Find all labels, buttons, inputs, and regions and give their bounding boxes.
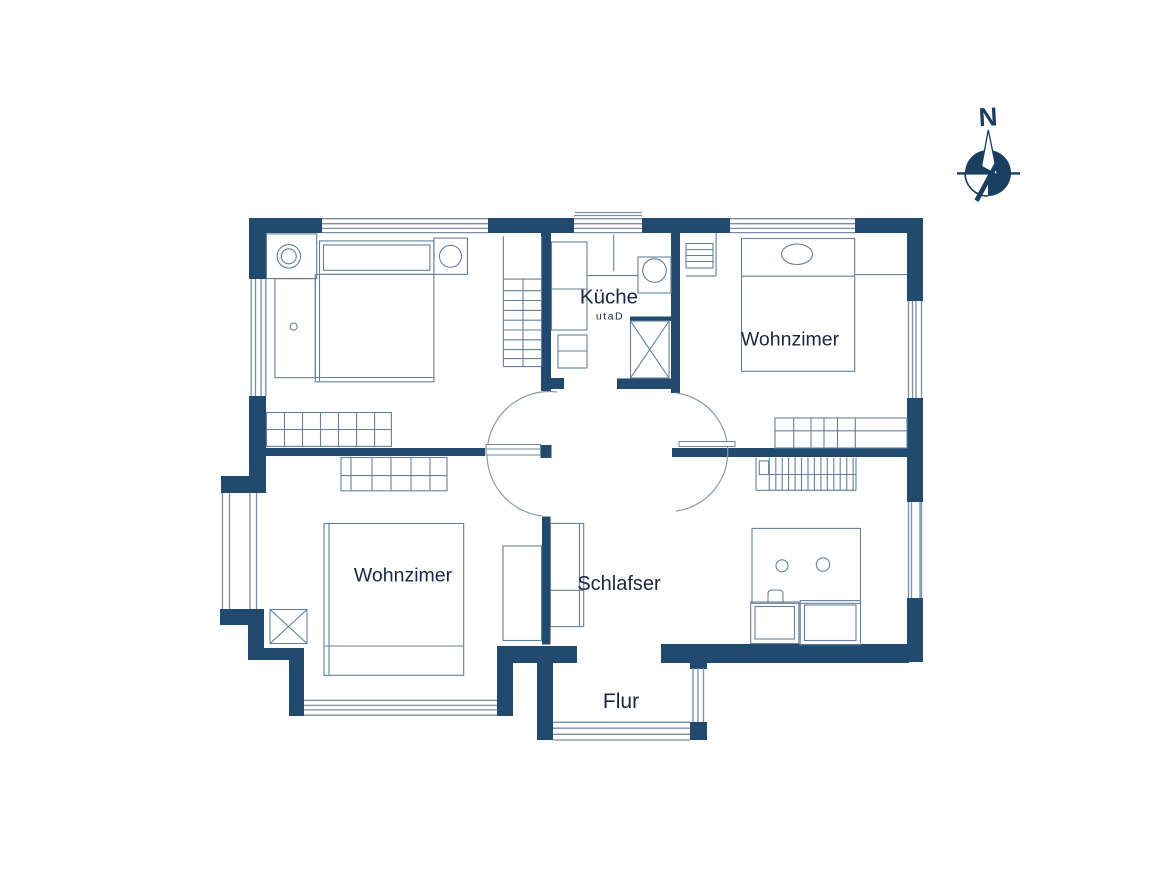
svg-text:N: N (978, 101, 998, 132)
svg-text:Schlafser: Schlafser (577, 573, 661, 595)
svg-text:Flur: Flur (603, 690, 639, 713)
svg-text:Wohnzimer: Wohnzimer (354, 565, 453, 587)
svg-text:Wohnzimer: Wohnzimer (741, 329, 840, 351)
svg-text:utaD: utaD (596, 311, 624, 323)
svg-text:Küche: Küche (580, 286, 638, 309)
